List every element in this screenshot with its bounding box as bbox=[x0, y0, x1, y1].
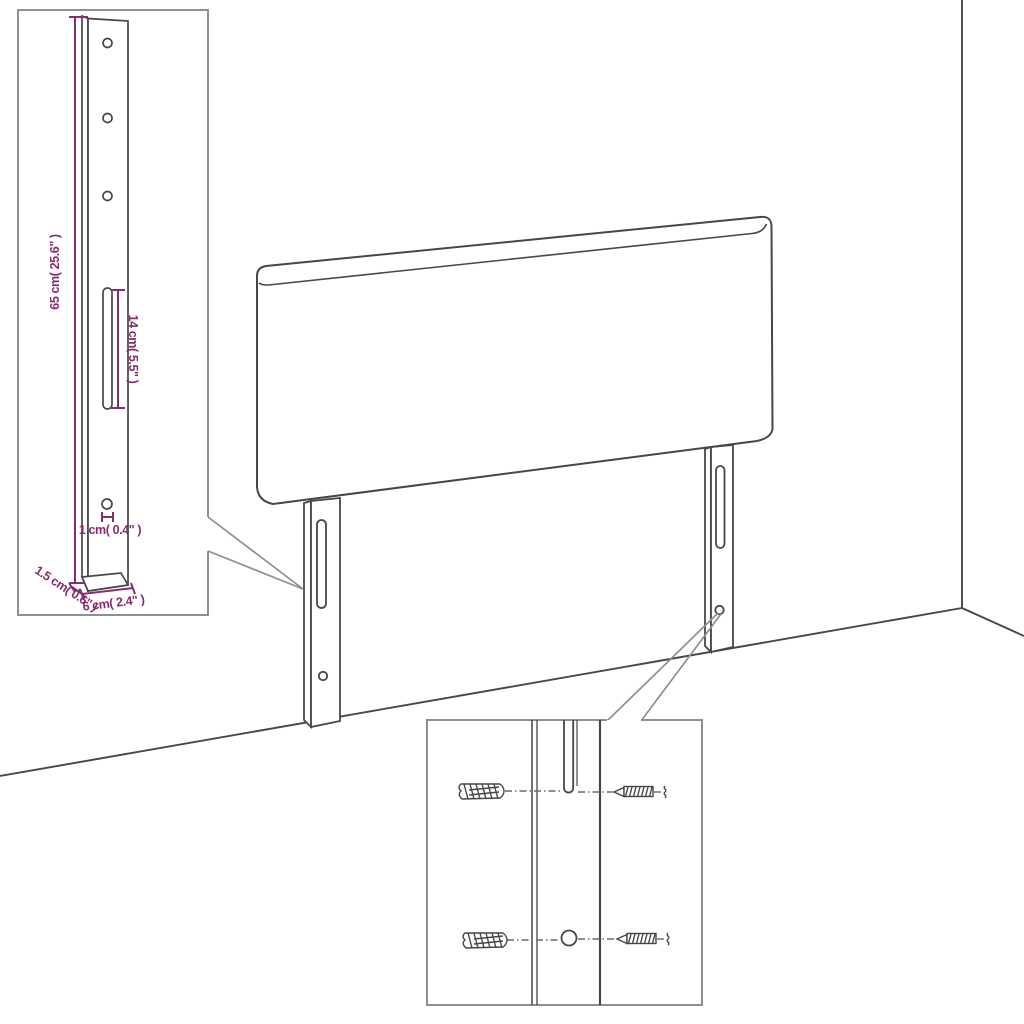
left-leg-side-face bbox=[304, 501, 311, 727]
left-leg-hole bbox=[319, 672, 327, 680]
inset2-pointer-right bbox=[641, 614, 721, 721]
enlarged-leg-hole-bottom bbox=[103, 192, 112, 201]
floor-edge-right bbox=[962, 608, 1024, 636]
enlarged-leg-side-face bbox=[82, 16, 88, 591]
inset1-pointer-upper bbox=[208, 517, 303, 589]
right-leg-slot bbox=[716, 466, 725, 548]
headboard-panel bbox=[257, 217, 773, 504]
right-leg-hole bbox=[715, 606, 723, 614]
label-slot-length: 14 cm( 5.5" ) bbox=[126, 315, 140, 384]
inset1-pointer-lower bbox=[208, 551, 303, 589]
enlarged-leg-anchor-hole bbox=[102, 499, 112, 509]
headboard-diagram: 65 cm( 25.6" ) 14 cm( 5.5" ) 1 cm( 0.4" … bbox=[0, 0, 1024, 1024]
callout-pointers bbox=[208, 517, 721, 721]
label-hole-size: 1 cm( 0.4" ) bbox=[79, 523, 142, 537]
enlarged-leg-hole-top bbox=[103, 39, 112, 48]
enlarged-leg-slot bbox=[103, 288, 112, 409]
inset-mounting-detail bbox=[427, 720, 702, 1005]
diagram-canvas: 65 cm( 25.6" ) 14 cm( 5.5" ) 1 cm( 0.4" … bbox=[0, 0, 1024, 1024]
left-leg-slot bbox=[317, 520, 326, 608]
left-mounting-leg bbox=[304, 498, 340, 727]
inset-leg-detail: 65 cm( 25.6" ) 14 cm( 5.5" ) 1 cm( 0.4" … bbox=[18, 10, 208, 615]
enlarged-leg-hole-middle bbox=[103, 114, 112, 123]
enlarged-leg bbox=[82, 16, 128, 591]
label-leg-height: 65 cm( 25.6" ) bbox=[48, 234, 62, 310]
panel-outline bbox=[257, 217, 773, 504]
